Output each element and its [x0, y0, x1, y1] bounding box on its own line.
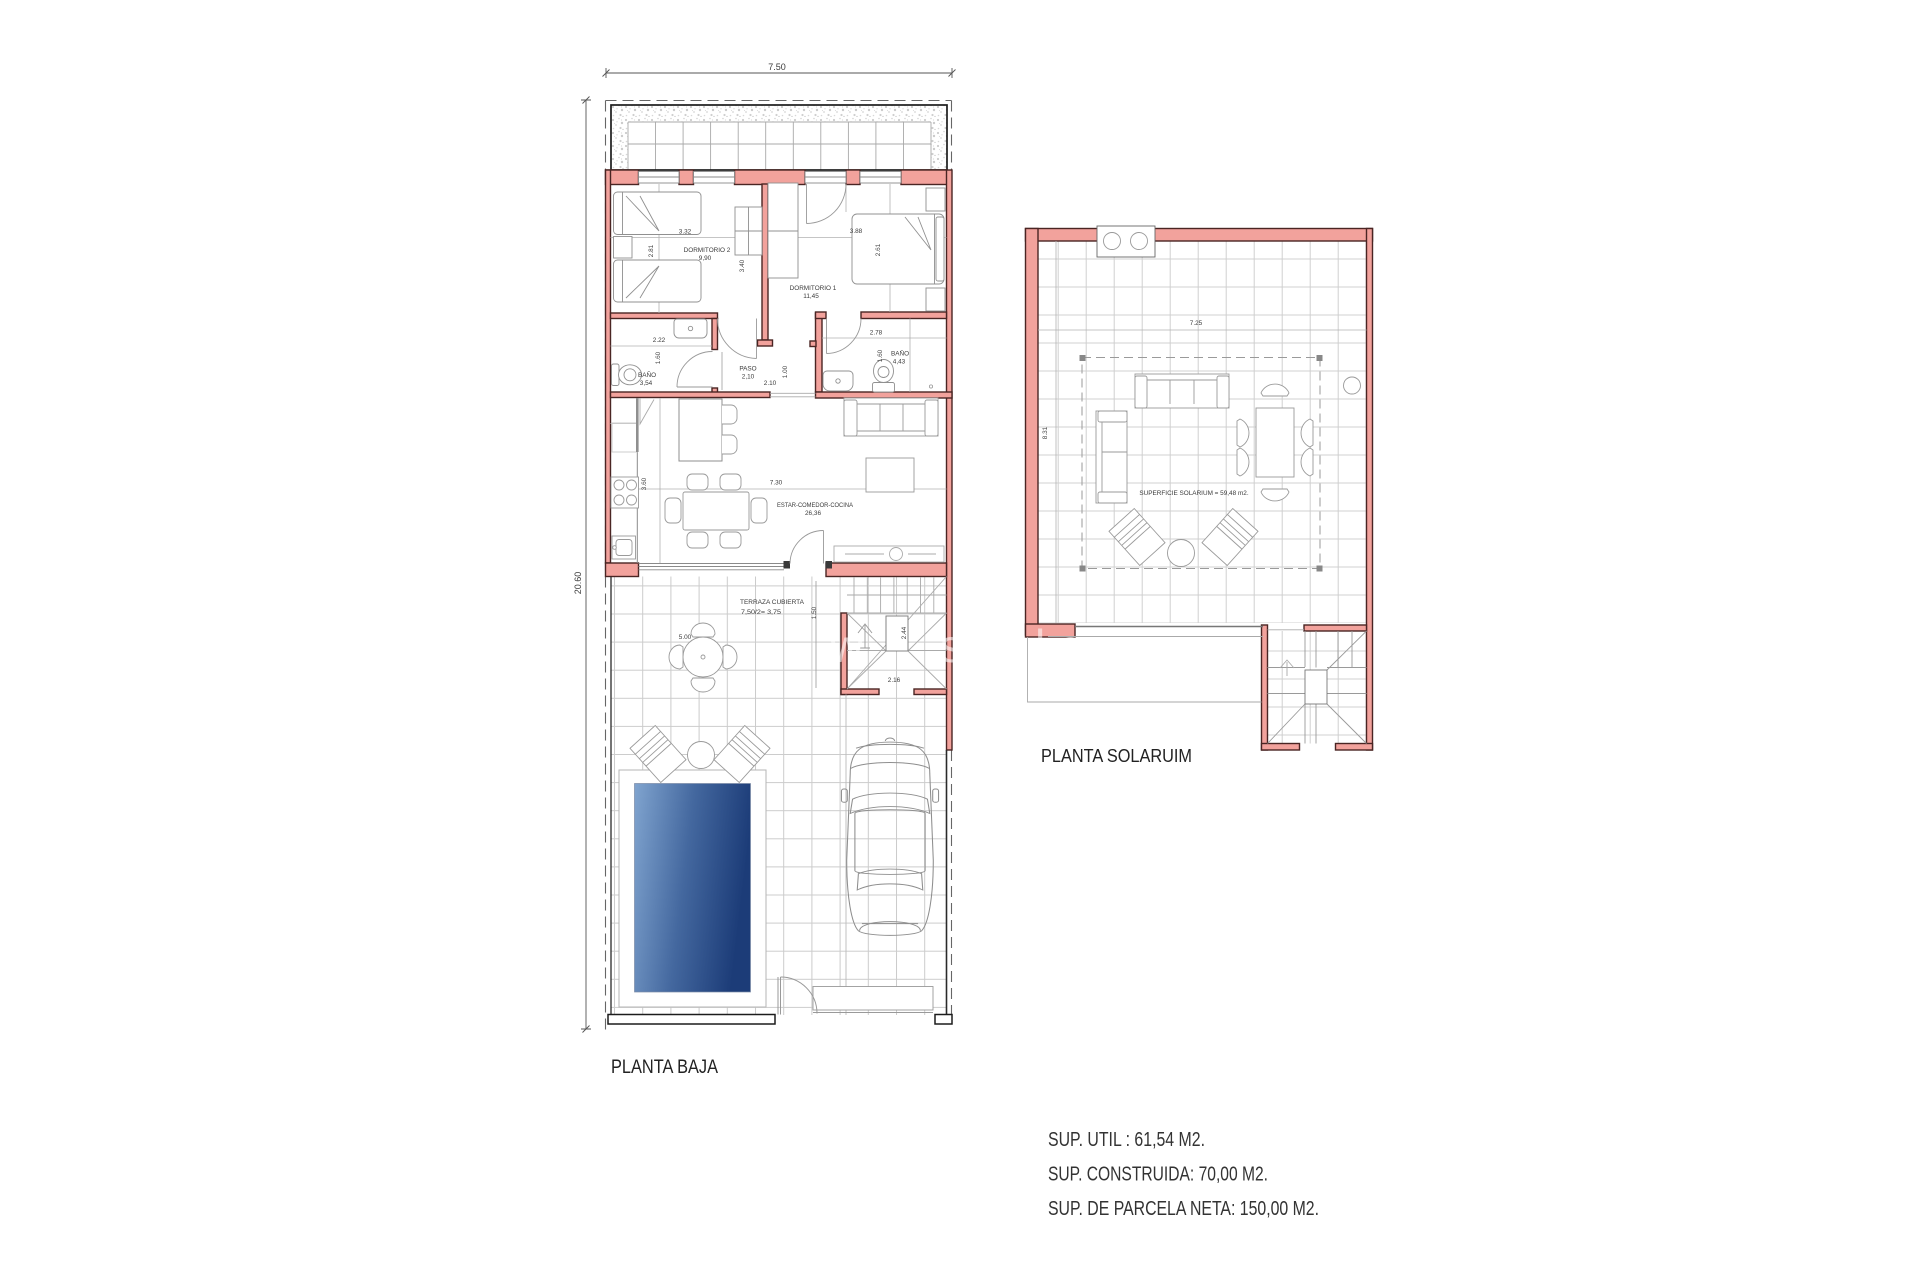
svg-text:5.00: 5.00: [679, 634, 692, 641]
svg-text:3.60: 3.60: [641, 477, 648, 490]
svg-text:8.31: 8.31: [1042, 426, 1049, 439]
svg-text:SUP. CONSTRUIDA: 70,00 M2.: SUP. CONSTRUIDA: 70,00 M2.: [1048, 1163, 1268, 1186]
svg-text:PLANTA BAJA: PLANTA BAJA: [611, 1056, 718, 1078]
svg-text:2.16: 2.16: [888, 677, 901, 684]
svg-text:2.78: 2.78: [870, 330, 883, 337]
svg-text:20.60: 20.60: [573, 572, 583, 595]
svg-text:9,90: 9,90: [699, 255, 712, 262]
svg-text:1.60: 1.60: [655, 351, 662, 364]
svg-text:3,54: 3,54: [640, 380, 653, 387]
svg-text:DORMITORIO 2: DORMITORIO 2: [684, 247, 731, 254]
svg-text:2.44: 2.44: [901, 626, 908, 639]
svg-text:26,36: 26,36: [805, 510, 821, 517]
svg-text:1.00: 1.00: [782, 365, 789, 378]
svg-text:2.81: 2.81: [648, 244, 655, 257]
svg-text:PASO: PASO: [739, 366, 756, 373]
svg-text:SUPERFICIE SOLARIUM = 59,48 m2: SUPERFICIE SOLARIUM = 59,48 m2.: [1139, 490, 1248, 497]
svg-text:7.30: 7.30: [770, 480, 783, 487]
svg-text:11,45: 11,45: [803, 293, 819, 300]
svg-text:3.32: 3.32: [679, 229, 692, 236]
svg-text:1.50: 1.50: [811, 606, 818, 619]
svg-text:1.60: 1.60: [877, 349, 884, 362]
svg-text:ESTAR-COMEDOR-COCINA: ESTAR-COMEDOR-COCINA: [777, 502, 854, 509]
svg-text:2,10: 2,10: [742, 374, 755, 381]
svg-text:3.88: 3.88: [850, 228, 863, 235]
svg-text:3.40: 3.40: [739, 259, 746, 272]
svg-text:BAÑO: BAÑO: [638, 370, 656, 379]
svg-text:2.22: 2.22: [653, 337, 666, 344]
svg-text:BAÑO: BAÑO: [891, 349, 909, 358]
svg-text:7,50/2= 3,75: 7,50/2= 3,75: [741, 609, 781, 616]
svg-text:2.10: 2.10: [764, 380, 777, 387]
svg-text:TERRAZA CUBIERTA: TERRAZA CUBIERTA: [740, 599, 805, 606]
svg-text:s: s: [940, 620, 963, 672]
svg-text:SUP. UTIL : 61,54 M2.: SUP. UTIL : 61,54 M2.: [1048, 1128, 1205, 1151]
svg-text:7.50: 7.50: [768, 62, 786, 72]
svg-text:PLANTA SOLARUIM: PLANTA SOLARUIM: [1041, 745, 1192, 766]
svg-text:SUP. DE PARCELA NETA: 150,00 M: SUP. DE PARCELA NETA: 150,00 M2.: [1048, 1197, 1319, 1220]
svg-text:DORMITORIO 1: DORMITORIO 1: [790, 285, 837, 292]
svg-text:w: w: [829, 620, 864, 672]
svg-text:4,43: 4,43: [893, 359, 906, 366]
svg-text:7.25: 7.25: [1190, 320, 1203, 327]
svg-text:2.61: 2.61: [875, 243, 882, 256]
svg-text:l.com: l.com: [1035, 620, 1145, 672]
